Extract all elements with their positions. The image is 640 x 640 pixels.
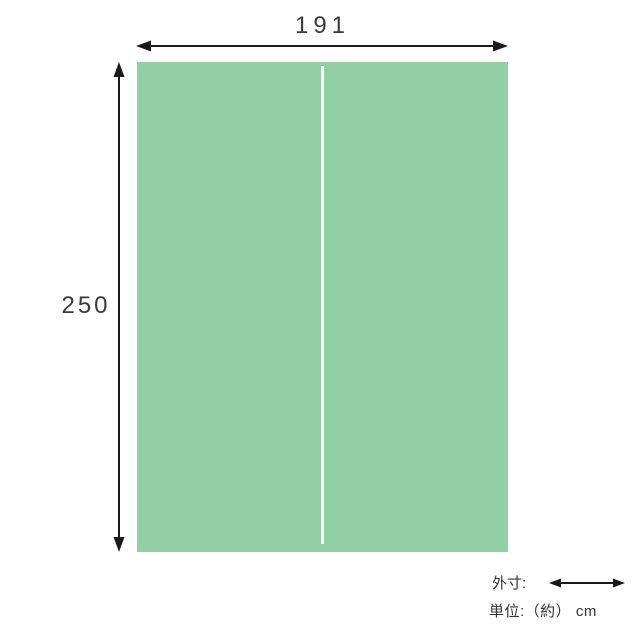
height-dimension-label: 250 [56, 292, 116, 320]
height-dimension-arrow [111, 61, 127, 553]
dimension-diagram: 191 250 外寸: 単位:（約） cm [0, 0, 640, 640]
legend-double-arrow-icon [548, 576, 626, 590]
center-seam-line [321, 66, 324, 544]
legend-outer-dimension-label: 外寸: [492, 572, 526, 593]
width-dimension-arrow [135, 38, 509, 54]
width-dimension-label: 191 [137, 12, 508, 40]
legend-unit-label: 単位:（約） cm [489, 600, 597, 621]
